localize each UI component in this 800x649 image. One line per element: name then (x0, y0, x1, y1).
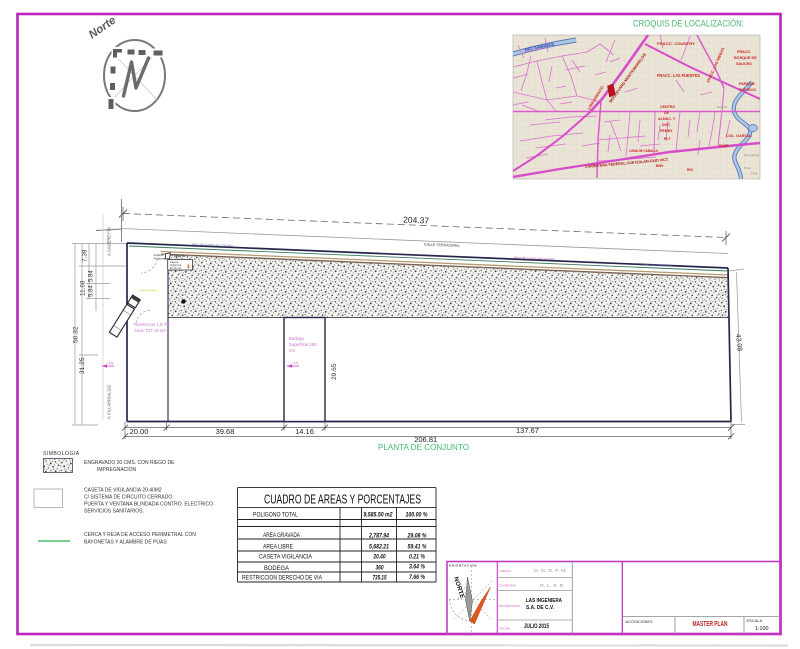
svg-text:~0.9: ~0.9 (107, 361, 113, 365)
svg-text:JULIO 2015: JULIO 2015 (524, 624, 550, 630)
svg-text:D. G. D. F. M.: D. G. D. F. M. (534, 568, 567, 573)
svg-text:CUADRO DE AREAS Y PORCENTAJES: CUADRO DE AREAS Y PORCENTAJES (264, 492, 421, 507)
svg-text:20.00: 20.00 (130, 427, 149, 436)
svg-text:2439 TE: 2439 TE (174, 254, 185, 258)
svg-text:A VILLAHIDALGO: A VILLAHIDALGO (107, 384, 112, 419)
svg-text:20.40 m2: 20.40 m2 (170, 266, 182, 270)
svg-text:m2: m2 (289, 348, 296, 353)
svg-text:9,585.50 m2: 9,585.50 m2 (364, 513, 394, 519)
svg-text:Bodega: Bodega (289, 336, 304, 341)
svg-text:MASTER PLAN: MASTER PLAN (693, 621, 728, 628)
svg-text:31.25: 31.25 (79, 357, 86, 374)
svg-text:POLIGONO TOTAL: POLIGONO TOTAL (253, 513, 299, 519)
svg-text:5,682.21: 5,682.21 (369, 544, 390, 550)
svg-text:A CADEREYTA: A CADEREYTA (107, 227, 112, 256)
svg-text:TURISCO: TURISCO (739, 88, 756, 92)
svg-text:PEMEX: PEMEX (660, 129, 673, 133)
svg-text:Lago: Lago (751, 171, 758, 175)
svg-text:FRACC. COUNTRY: FRACC. COUNTRY (657, 41, 695, 46)
svg-text:11.68: 11.68 (80, 280, 87, 296)
svg-text:ESCALA: ESCALA (747, 618, 763, 623)
svg-text:Peatonal: Peatonal (154, 256, 166, 260)
svg-text:ORIENTACION: ORIENTACION (449, 564, 477, 568)
svg-text:ALMAC. Y: ALMAC. Y (658, 117, 676, 121)
svg-text:1:100: 1:100 (755, 626, 769, 632)
svg-text:RESTRICCION DERECHO DE VIA: RESTRICCION DERECHO DE VIA (242, 575, 322, 581)
svg-text:SERVICIOS SANITARIOS.: SERVICIOS SANITARIOS. (84, 509, 144, 515)
svg-text:Superficie 360: Superficie 360 (289, 342, 317, 347)
svg-text:20.40: 20.40 (373, 554, 386, 560)
svg-text:CASETA VIGILANCIA: CASETA VIGILANCIA (259, 554, 312, 560)
svg-text:Restriccion 1.5-7m: Restriccion 1.5-7m (134, 322, 170, 327)
svg-text:BAYONETAS Y ALAMBRE DE PUAS: BAYONETAS Y ALAMBRE DE PUAS (84, 540, 167, 546)
svg-text:AREA GRAVADA: AREA GRAVADA (263, 533, 300, 539)
svg-text:CERCA Y REJA DE ACCESO PERIMET: CERCA Y REJA DE ACCESO PERIMETRAL CON (84, 532, 196, 538)
svg-text:50.32: 50.32 (73, 326, 80, 343)
svg-text:29.08 %: 29.08 % (407, 533, 427, 539)
svg-text:BODEGA: BODEGA (264, 566, 289, 572)
svg-text:COORDINO: COORDINO (499, 584, 517, 588)
svg-text:CROQUIS DE LOCALIZACIÓN:: CROQUIS DE LOCALIZACIÓN: (633, 19, 744, 29)
svg-text:Norte: Norte (87, 14, 119, 41)
svg-text:FECHA: FECHA (500, 627, 511, 631)
svg-text:CALLE TERRACERIA: CALLE TERRACERIA (424, 243, 460, 248)
svg-text:CENTRO: CENTRO (660, 105, 675, 109)
svg-text:CASETA DE VIGILANCIA 20.40M2: CASETA DE VIGILANCIA 20.40M2 (84, 488, 162, 494)
svg-text:ACOTACIONES: ACOTACIONES (626, 620, 654, 624)
svg-text:PLT: PLT (664, 137, 671, 141)
svg-text:R. L. S. R.: R. L. S. R. (540, 583, 565, 588)
svg-text:Muro de contencion concreto: Muro de contencion concreto (514, 256, 555, 262)
svg-text:735.15: 735.15 (373, 575, 387, 581)
svg-text:COL. GARCIA.: COL. GARCIA. (726, 133, 752, 138)
svg-text:137.67: 137.67 (516, 426, 539, 435)
svg-text:PARQUE: PARQUE (739, 82, 755, 86)
svg-text:BMV: BMV (656, 164, 664, 168)
svg-text:0.21 %: 0.21 % (409, 554, 426, 560)
svg-text:AREA LIBRE: AREA LIBRE (263, 544, 293, 550)
svg-text:DIST.: DIST. (662, 123, 671, 127)
svg-text:LAS INGENIERA: LAS INGENIERA (526, 598, 562, 604)
svg-text:5.84: 5.84 (89, 270, 95, 282)
svg-text:29.65: 29.65 (331, 363, 338, 380)
svg-text:RIO: RIO (687, 168, 693, 172)
svg-text:~0.5: ~0.5 (292, 361, 298, 365)
svg-text:3.64 %: 3.64 % (409, 564, 426, 570)
svg-text:204.37: 204.37 (403, 215, 430, 226)
svg-text:S.A. DE C.V.: S.A. DE C.V. (526, 605, 554, 611)
svg-text:DIBUJO: DIBUJO (500, 569, 512, 573)
svg-text:DE: DE (664, 111, 670, 115)
svg-text:43.08: 43.08 (734, 333, 743, 351)
svg-text:Rancho: Rancho (717, 105, 728, 109)
svg-text:IMPREGNACION: IMPREGNACION (97, 467, 137, 473)
svg-text:Area: 727.16 m2: Area: 727.16 m2 (134, 328, 166, 333)
svg-text:5.84: 5.84 (89, 285, 95, 297)
svg-text:2,787.94: 2,787.94 (368, 533, 389, 539)
svg-text:PROPIETARIO: PROPIETARIO (499, 604, 521, 608)
svg-text:7.39: 7.39 (82, 249, 89, 262)
svg-text:PUERTA Y VENTANA BLINDADA CONT: PUERTA Y VENTANA BLINDADA CONTRO. ELECTR… (84, 502, 213, 508)
svg-text:BOSQUE DE: BOSQUE DE (734, 56, 757, 60)
svg-text:100.00 %: 100.00 % (406, 513, 429, 519)
svg-text:SAUCES: SAUCES (736, 62, 752, 66)
svg-text:C/ SISTEMA DE CIRCUITO CERRADO: C/ SISTEMA DE CIRCUITO CERRADO (84, 495, 172, 501)
svg-text:39.68: 39.68 (216, 427, 235, 436)
svg-text:14.16: 14.16 (295, 427, 314, 436)
svg-text:Muro de contencion: Muro de contencion (643, 263, 671, 268)
svg-text:Pozo: Pozo (744, 166, 751, 170)
svg-text:59.41 %: 59.41 % (408, 544, 428, 550)
svg-text:360: 360 (376, 565, 385, 571)
svg-text:Secundaria: Secundaria (744, 153, 760, 157)
svg-text:RAMB: RAMB (719, 144, 729, 148)
svg-text:ENGRAVADO 20 CMS. CON RIEGO DE: ENGRAVADO 20 CMS. CON RIEGO DE (84, 460, 175, 466)
svg-text:PLANTA DE CONJUNTO: PLANTA DE CONJUNTO (378, 442, 469, 452)
svg-text:7.66 %: 7.66 % (409, 575, 426, 581)
svg-text:SIMBOLOGIA: SIMBOLOGIA (43, 451, 80, 457)
svg-text:FRACC.: FRACC. (737, 50, 751, 54)
svg-text:LOMA DE CABALLO: LOMA DE CABALLO (629, 149, 658, 153)
svg-text:NORTE: NORTE (452, 576, 466, 600)
svg-text:FRACC. LAS FUENTES: FRACC. LAS FUENTES (657, 73, 700, 78)
